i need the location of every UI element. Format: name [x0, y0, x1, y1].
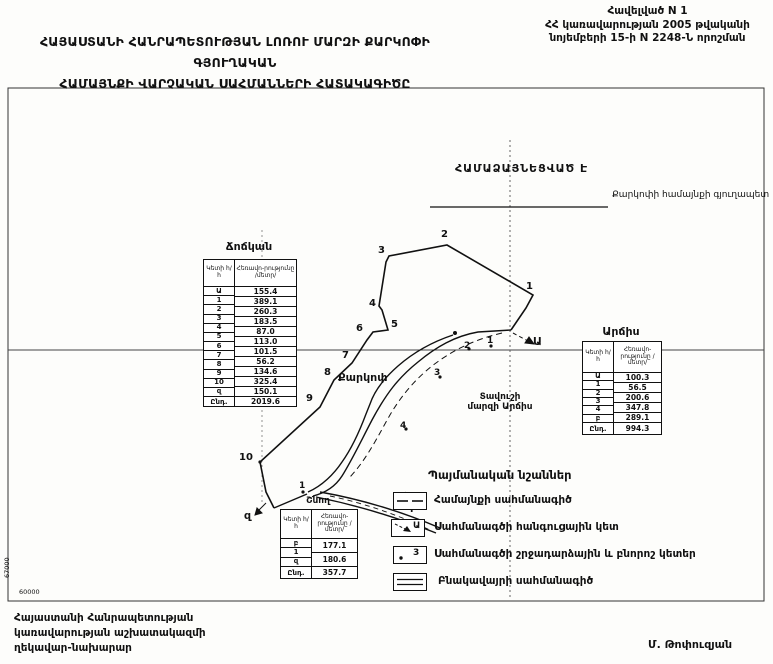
distance-value: 100.3 [614, 373, 661, 383]
distance-value-column: 177.1 180.6 [312, 539, 357, 567]
distance-value: 289.1 [614, 413, 661, 423]
inner-point-1: 1 [487, 336, 493, 346]
distance-value: 56.5 [614, 383, 661, 393]
appendix-block: Հավելված N 1 ՀՀ կառավարության 2005 թվակա… [525, 5, 770, 46]
legend-title: Պայմանական նշաններ [428, 468, 572, 482]
total-value: 2019.6 [235, 397, 296, 406]
column-header-distance: Հեռավո-րությունը /մետր/ [614, 342, 661, 372]
neighbor-line-1: Տավուշի [458, 392, 542, 402]
total-value: 994.3 [614, 423, 661, 434]
distance-value-column: 100.3 56.5 200.6 347.8 289.1 [614, 373, 661, 423]
column-header-distance: Հեռավո-րությունը /մետր/ [235, 260, 296, 286]
authority-line-3: ղեկավար-նախարար [14, 641, 206, 656]
legend-symbol-community-boundary [393, 492, 427, 510]
point-label: 5 [204, 333, 234, 342]
outer-point-3: 3 [378, 245, 385, 256]
authority-line-1: Հայաստանի Հանրապետության [14, 611, 206, 626]
legend-symbol-turning-points: 3 [393, 546, 427, 564]
point-label: բ [583, 415, 613, 423]
issuing-authority-block: Հայաստանի Հանրապետության կառավարության ա… [14, 611, 206, 656]
distance-value: 183.5 [235, 317, 296, 327]
point-label: զ [281, 558, 311, 567]
distance-value: 325.4 [235, 377, 296, 387]
appendix-line-2: ՀՀ կառավարության 2005 թվականի [525, 19, 770, 33]
legend-item-junction-point: Սահմանագծի հանգուցային կետ [434, 521, 619, 533]
point-label-column: Ա 1 2 3 4 5 6 7 8 9 10 զ [204, 287, 235, 397]
table-title-archis: Արճիս [582, 325, 660, 338]
total-label: Ընդ. [281, 567, 312, 578]
distance-value: 155.4 [235, 287, 296, 297]
column-header-distance: Հեռավո-րությունը /մետր/ [312, 510, 357, 538]
outer-point-6: 6 [356, 323, 363, 334]
inner-point-3: 3 [434, 368, 440, 378]
outer-point-2: 2 [441, 229, 448, 240]
appendix-line-3: նոյեմբերի 15-ի N 2248-Ն որոշման [525, 32, 770, 46]
distance-value: 101.5 [235, 347, 296, 357]
outer-point-9: 9 [306, 393, 313, 404]
total-value: 357.7 [312, 567, 357, 578]
table-title-chochkan: Ճոճկան [203, 240, 295, 253]
distance-value: 180.6 [312, 553, 357, 567]
distance-table-archis: Կետի հ/հ Հեռավո-րությունը /մետր/ Ա 1 2 3… [582, 341, 662, 435]
distance-value: 150.1 [235, 387, 296, 397]
point-label: 7 [204, 351, 234, 360]
point-label: զ [204, 388, 234, 397]
legend-item-turning-points: Սահմանագծի շրջադարձային և բնորոշ կետեր [434, 548, 696, 560]
distance-value: 260.3 [235, 307, 296, 317]
distance-value: 87.0 [235, 327, 296, 337]
grid-coordinate-label: 67000 [3, 557, 11, 578]
legend-junction-letter: Ա [413, 521, 420, 531]
outer-point-5: 5 [391, 319, 398, 330]
legend-item-settlement-boundary: Բնակավայրի սահմանագիծ [438, 575, 593, 587]
junction-arrow-z [255, 503, 266, 515]
point-label: 6 [204, 342, 234, 351]
point-label: Ա [204, 287, 234, 296]
legend-symbol-junction-point: Ա [391, 519, 425, 537]
authority-line-2: կառավարության աշխատակազմի [14, 626, 206, 641]
agreed-label: ՀԱՄԱՁԱՅՆԵՑՎԱԾ Է [455, 162, 588, 175]
legend-point-number: 3 [413, 548, 419, 558]
outer-point-4: 4 [369, 298, 376, 309]
inner-point-2: 2 [464, 341, 470, 351]
distance-value: 347.8 [614, 403, 661, 413]
legend-symbol-settlement-boundary [393, 573, 427, 591]
point-dot-icon [394, 547, 426, 563]
appendix-line-1: Հավելված N 1 [525, 5, 770, 19]
distance-value: 56.2 [235, 357, 296, 367]
junction-label-z: զ [244, 509, 251, 522]
distance-value: 113.0 [235, 337, 296, 347]
total-label: Ընդ. [204, 397, 235, 406]
column-header-point: Կետի հ/հ [583, 342, 614, 372]
point-label: 1 [281, 548, 311, 557]
junction-arrow-a [513, 333, 534, 344]
distance-table-chochkan: Կետի հ/հ Հեռավո-րությունը /մետր/ Ա 1 2 3… [203, 259, 297, 407]
scale-label: 60000 [19, 588, 40, 596]
double-line-icon [394, 574, 426, 590]
neighbor-line-2: մարզի Արճիս [458, 402, 542, 412]
point-label: 1 [204, 296, 234, 305]
inner-point-4: 4 [400, 421, 406, 431]
outer-point-1: 1 [526, 281, 533, 292]
outer-point-8: 8 [324, 367, 331, 378]
outer-point-10: 10 [239, 452, 253, 463]
settlement-label: Քարկոփ [338, 371, 387, 384]
point-label-column: Ա 1 2 3 4 բ [583, 373, 614, 423]
distance-value: 177.1 [312, 539, 357, 553]
page-title-line-2: ՀԱՄԱՅՆՔԻ ՎԱՐՉԱԿԱՆ ՍԱՀՄԱՆՆԵՐԻ ՀԱՏԱԿԱԳԻԾԸ [4, 73, 466, 94]
distance-table-shnogh: Կետի հ/հ Հեռավո-րությունը /մետր/ բ 1 զ 1… [280, 509, 358, 579]
distance-value: 200.6 [614, 393, 661, 403]
outer-point-7: 7 [342, 350, 349, 361]
shnogh-point-1: 1 [299, 481, 305, 491]
junction-label-a: Ա [533, 335, 542, 348]
distance-value: 134.6 [235, 367, 296, 377]
boundary-line-icon [394, 493, 426, 509]
total-label: Ընդ. [583, 423, 614, 434]
distance-value: 389.1 [235, 297, 296, 307]
page-title: ՀԱՅԱՍՏԱՆԻ ՀԱՆՐԱՊԵՏՈՒԹՅԱՆ ԼՈՌՈՒ ՄԱՐԶԻ ՔԱՐ… [4, 31, 466, 94]
point-label: բ [281, 539, 311, 548]
signatory-title: Քարկոփի համայնքի գյուղապետ [612, 190, 769, 200]
table-title-shnogh: Շնող [280, 496, 356, 506]
neighbor-region-label: Տավուշի մարզի Արճիս [458, 392, 542, 412]
column-header-point: Կետի հ/հ [281, 510, 312, 538]
legend-item-community-boundary: Համայնքի սահմանագիծ [434, 494, 572, 506]
page-title-line-1: ՀԱՅԱՍՏԱՆԻ ՀԱՆՐԱՊԵՏՈՒԹՅԱՆ ԼՈՌՈՒ ՄԱՐԶԻ ՔԱՐ… [4, 31, 466, 73]
signature-name: Մ. Թոփուզյան [648, 638, 732, 651]
column-header-point: Կետի հ/հ [204, 260, 235, 286]
point-label-column: բ 1 զ [281, 539, 312, 567]
distance-value-column: 155.4 389.1 260.3 183.5 87.0 113.0 101.5… [235, 287, 296, 397]
